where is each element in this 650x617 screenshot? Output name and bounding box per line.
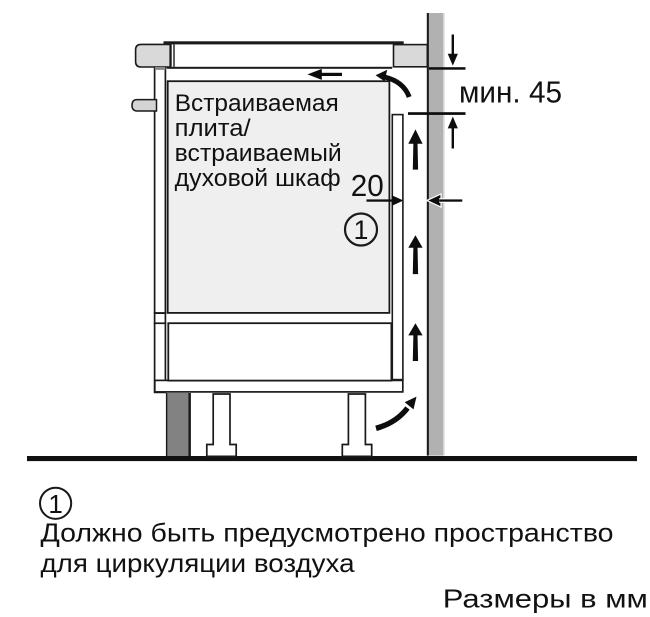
- svg-text:мин. 45: мин. 45: [459, 74, 562, 109]
- svg-text:Размеры в мм: Размеры в мм: [443, 583, 648, 613]
- svg-text:20: 20: [351, 168, 384, 203]
- svg-text:1: 1: [354, 215, 369, 245]
- svg-text:Встраиваемая: Встраиваемая: [175, 90, 339, 117]
- svg-text:Должно быть предусмотрено прос: Должно быть предусмотрено пространство: [41, 517, 614, 547]
- svg-text:1: 1: [48, 489, 62, 519]
- svg-text:духовой шкаф: духовой шкаф: [175, 165, 341, 192]
- svg-text:встраиваемый: встраиваемый: [175, 140, 342, 167]
- svg-text:плита/: плита/: [175, 115, 251, 142]
- svg-text:для циркуляции воздуха: для циркуляции воздуха: [41, 548, 356, 578]
